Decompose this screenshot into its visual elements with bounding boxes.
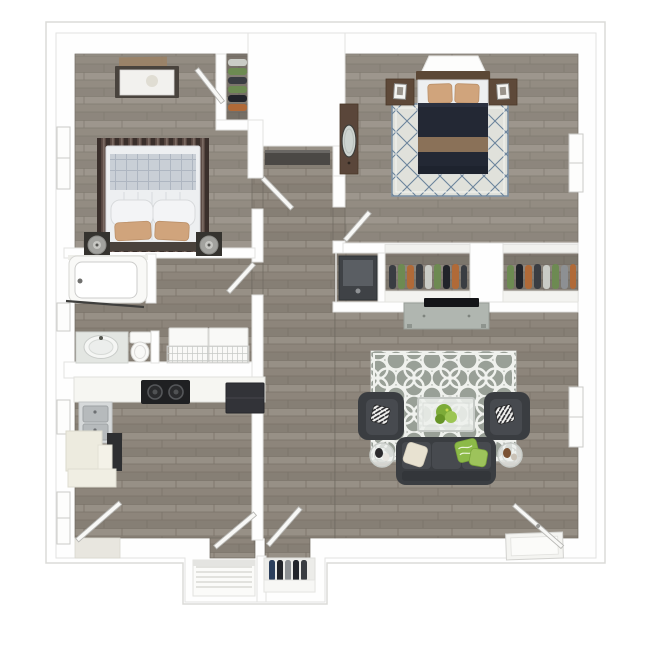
toilet [130, 332, 151, 362]
armchair-left [358, 392, 404, 440]
figurine-cream [511, 454, 517, 461]
appliance-dial [356, 289, 361, 294]
figurine-brown [503, 448, 511, 458]
bed-2-duvet-fold [418, 103, 488, 107]
vanity-faucet [99, 336, 103, 340]
green-pillow-small [469, 448, 489, 468]
coat-closet-hanging-clothes [269, 560, 307, 582]
refrigerator [226, 383, 264, 413]
wall-closet1-left [216, 54, 226, 122]
figurine-dark [375, 448, 383, 458]
bed-1-headboard [106, 242, 200, 251]
cooktop [141, 380, 190, 404]
tv-console-legs-right [481, 324, 486, 328]
sink-faucet [93, 410, 96, 413]
tub-faucet [78, 279, 83, 284]
bed-2-headboard [416, 71, 490, 80]
figurine-white [383, 453, 390, 461]
end-table-left [370, 443, 394, 467]
window-kitchen-left-lower [57, 492, 70, 544]
threshold-kitchen-door [75, 538, 120, 558]
closet-a-sill [385, 245, 470, 253]
window-bathroom-left [57, 303, 70, 331]
window-kitchen-left-upper [57, 400, 70, 434]
armchair-right [484, 392, 530, 440]
wall-bath-kitchen-divider [64, 362, 252, 378]
bed-2-tan-pillow-right [455, 84, 480, 104]
cabinet-cream-small [98, 445, 112, 469]
hall-niche [265, 150, 330, 165]
table-lamp-left [88, 236, 106, 254]
threshold-bedroom-2-door [333, 207, 345, 241]
appliance-panel [343, 260, 373, 286]
wall-hall-east-a [333, 176, 345, 207]
wall-closet1-bottom [216, 120, 248, 130]
flat-screen-tv [424, 298, 479, 307]
wire-rack [167, 346, 249, 363]
vanity [76, 332, 128, 363]
sofa [396, 437, 496, 485]
cabinet-cream-tall [66, 431, 102, 471]
floor-plan-canvas [0, 0, 650, 650]
window-bedroom-2-right [569, 134, 583, 192]
nightstand-left-b2 [386, 79, 414, 105]
sofa-back [402, 471, 491, 481]
tv-wall-unit [404, 298, 489, 329]
wall-shelf [421, 56, 486, 73]
bed-1-tan-pillow-right [155, 221, 190, 241]
closet-b-shelf [503, 291, 578, 302]
niche-shelf-highlight [265, 150, 330, 153]
bathtub-basin [75, 262, 137, 298]
wall-washer-closet-divider [378, 253, 385, 302]
floor-hallway [262, 146, 335, 538]
bed-1-plaid-lines [110, 154, 196, 190]
end-table-right [498, 443, 522, 467]
nightstand-right-b2 [489, 79, 517, 105]
dresser-with-mirror [340, 104, 358, 174]
entry-linen-closet-shadow [193, 560, 255, 566]
bed-1-tan-pillow-left [115, 221, 152, 241]
tv-console-legs-left [407, 324, 412, 328]
closet-b-sill [503, 245, 578, 253]
washer-closet [339, 256, 377, 300]
window-bedroom-1-left [57, 127, 70, 189]
bw-pillow-right [494, 404, 515, 425]
bed-2-tan-pillow-left [428, 84, 453, 104]
coffee-table [418, 398, 474, 431]
wall-b1-east-upper [248, 120, 263, 178]
bed-2-foot-fold [418, 166, 488, 174]
window-living-room-right [569, 387, 583, 447]
table-lamp-right [200, 236, 218, 254]
bed-2-brown-band [418, 137, 488, 152]
threshold-bedroom-1-door [252, 177, 263, 209]
bw-pillow-left [370, 404, 391, 425]
floor-plan-page [0, 0, 650, 650]
dresser-decor [146, 75, 158, 87]
door-mat [506, 532, 564, 560]
wall-hall-west-b [252, 295, 263, 540]
hanging-clothes-closet-a [389, 264, 467, 289]
wall-toilet-stub [151, 331, 159, 363]
cabinet-cream-low [68, 469, 116, 487]
coat-closet-shelf [264, 580, 315, 592]
